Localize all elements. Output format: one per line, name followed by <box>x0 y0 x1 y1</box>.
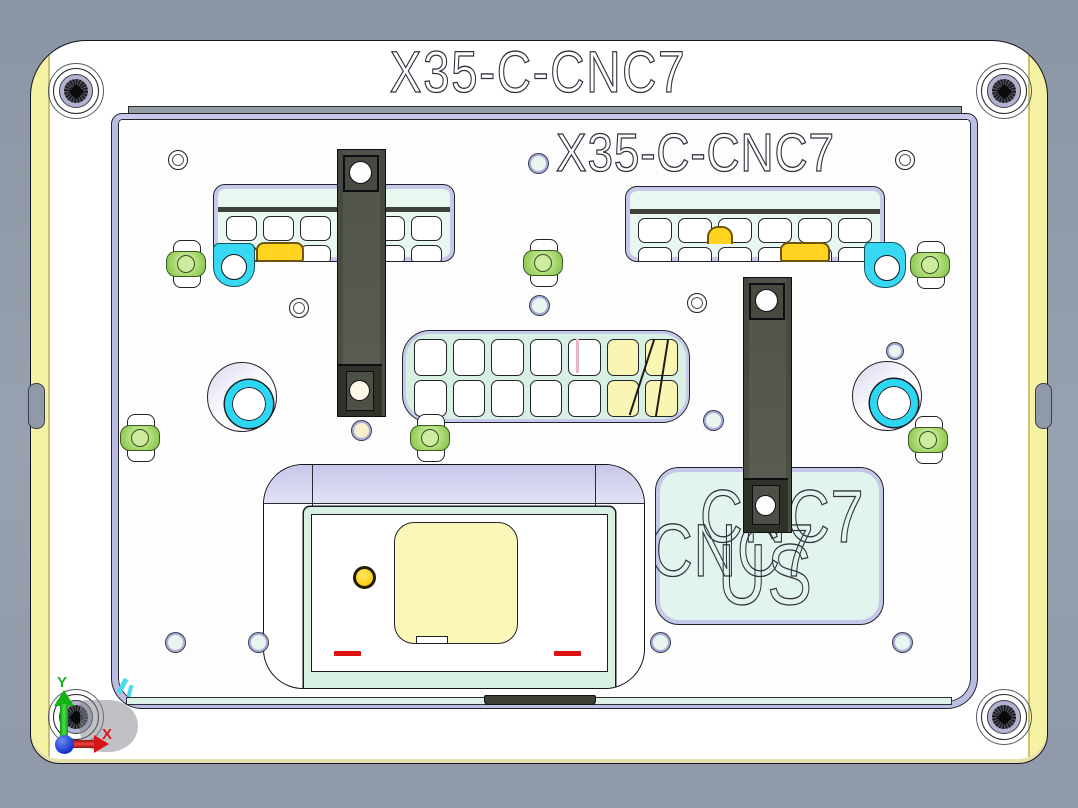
clamp-top-block <box>749 283 785 320</box>
pocket <box>568 339 601 376</box>
dowel-hole <box>887 343 903 359</box>
pocket <box>300 216 331 241</box>
rail-pocket-row <box>635 247 875 262</box>
window-notch <box>416 636 448 643</box>
clamp-screw-hole <box>755 289 778 312</box>
clamp-body <box>910 252 950 278</box>
dowel-hole <box>530 296 549 315</box>
corner-screw[interactable] <box>48 63 104 119</box>
pocket <box>758 218 792 243</box>
clamp-screw-hole <box>349 380 370 401</box>
clamp-body <box>523 250 563 276</box>
toe-clamp[interactable] <box>523 239 563 285</box>
edge-notch-left <box>28 383 45 429</box>
bottom-edge-tab <box>484 695 596 705</box>
clamp-bottom-block <box>744 478 788 532</box>
clamp-bar-left[interactable] <box>337 149 386 417</box>
pocket <box>838 218 872 243</box>
plate-hole <box>168 150 188 170</box>
assembly-top-band <box>264 465 644 504</box>
corner-screw[interactable] <box>976 689 1032 745</box>
y-axis-shaft[interactable] <box>60 704 68 738</box>
pocket-yellow <box>607 339 640 376</box>
clamp-center <box>177 255 195 273</box>
corner-screw[interactable] <box>976 63 1032 119</box>
toe-clamp[interactable] <box>120 414 160 460</box>
toe-clamp[interactable] <box>910 241 950 287</box>
pocket <box>568 380 601 417</box>
clamp-top-block <box>343 155 379 192</box>
clamp-screw-hole <box>349 161 372 184</box>
pocket <box>678 247 712 262</box>
amber-button[interactable] <box>353 566 376 589</box>
red-marker <box>334 651 361 656</box>
plate-hole <box>687 293 707 313</box>
pocket <box>491 380 524 417</box>
dowel-hole <box>249 633 268 652</box>
pocket <box>263 216 294 241</box>
pocket <box>411 245 442 262</box>
center-lattice-part[interactable] <box>402 330 690 423</box>
rail-stripe <box>218 207 450 212</box>
pocket <box>411 216 442 241</box>
amber-dome-peg[interactable] <box>707 226 733 244</box>
dowel-hole <box>651 633 670 652</box>
pocket <box>453 380 486 417</box>
dowel-hole <box>704 411 723 430</box>
cyan-bushing <box>225 380 273 428</box>
pocket <box>226 216 257 241</box>
pocket <box>414 380 447 417</box>
pocket <box>638 247 672 262</box>
dowel-hole <box>529 154 548 173</box>
clamp-center <box>421 429 439 447</box>
clamp-body <box>120 425 160 451</box>
pocket <box>300 245 331 262</box>
clamp-center <box>921 256 939 274</box>
x-axis-arrowhead[interactable] <box>94 735 109 753</box>
dowel-hole <box>166 633 185 652</box>
amber-pad-right[interactable] <box>780 242 830 262</box>
rail-pocket-row <box>223 216 445 241</box>
pocket <box>718 247 752 262</box>
assembly-window[interactable] <box>304 507 615 689</box>
red-marker <box>554 651 581 656</box>
dowel-hole <box>352 421 371 440</box>
pocket <box>798 218 832 243</box>
pink-edge-detail <box>576 339 579 373</box>
subplate-engraved-title: X35-C-CNC7 <box>556 122 835 184</box>
clamp-bar-right[interactable] <box>743 277 792 533</box>
plate-hole <box>895 150 915 170</box>
edge-notch-right <box>1035 383 1052 429</box>
rail-pocket-row <box>635 218 875 243</box>
pocket <box>491 339 524 376</box>
clamp-panel <box>346 371 374 411</box>
pocket <box>638 218 672 243</box>
pocket <box>530 339 563 376</box>
cad-viewport[interactable]: X35-C-CNC7 X35-C-CNC7 <box>0 0 1078 808</box>
pocket <box>453 339 486 376</box>
y-axis-label: Y <box>57 674 67 691</box>
rail-stripe <box>630 209 880 214</box>
toe-clamp[interactable] <box>410 414 450 460</box>
clamp-body <box>166 251 206 277</box>
pale-yellow-part[interactable] <box>394 522 518 644</box>
clamp-center <box>534 254 552 272</box>
pocket <box>530 380 563 417</box>
outer-plate-engraved-title: X35-C-CNC7 <box>121 42 954 104</box>
rail-right[interactable] <box>625 186 885 262</box>
clamp-body <box>908 427 948 453</box>
clamp-body <box>410 425 450 451</box>
cyan-locator-right[interactable] <box>864 242 906 288</box>
round-boss-left[interactable] <box>207 362 277 432</box>
lattice-pocket-row <box>411 339 681 376</box>
origin-sphere[interactable] <box>55 735 74 754</box>
toe-clamp[interactable] <box>908 416 948 462</box>
plate-hole <box>289 298 309 318</box>
amber-pad-left[interactable] <box>256 242 304 262</box>
lattice-pocket-row <box>411 380 681 417</box>
clamp-panel <box>752 485 780 525</box>
clamp-center <box>919 431 937 449</box>
locator-hole <box>221 254 247 280</box>
clamp-center <box>131 429 149 447</box>
block-engraving-line2: US <box>718 526 813 625</box>
toe-clamp[interactable] <box>166 240 206 286</box>
bottom-assembly[interactable] <box>263 464 645 689</box>
clamp-screw-hole <box>755 495 776 516</box>
pocket <box>414 339 447 376</box>
dowel-hole <box>893 633 912 652</box>
clamp-bottom-block <box>338 364 382 416</box>
cyan-locator-left[interactable] <box>213 243 255 287</box>
locator-hole <box>874 255 900 281</box>
